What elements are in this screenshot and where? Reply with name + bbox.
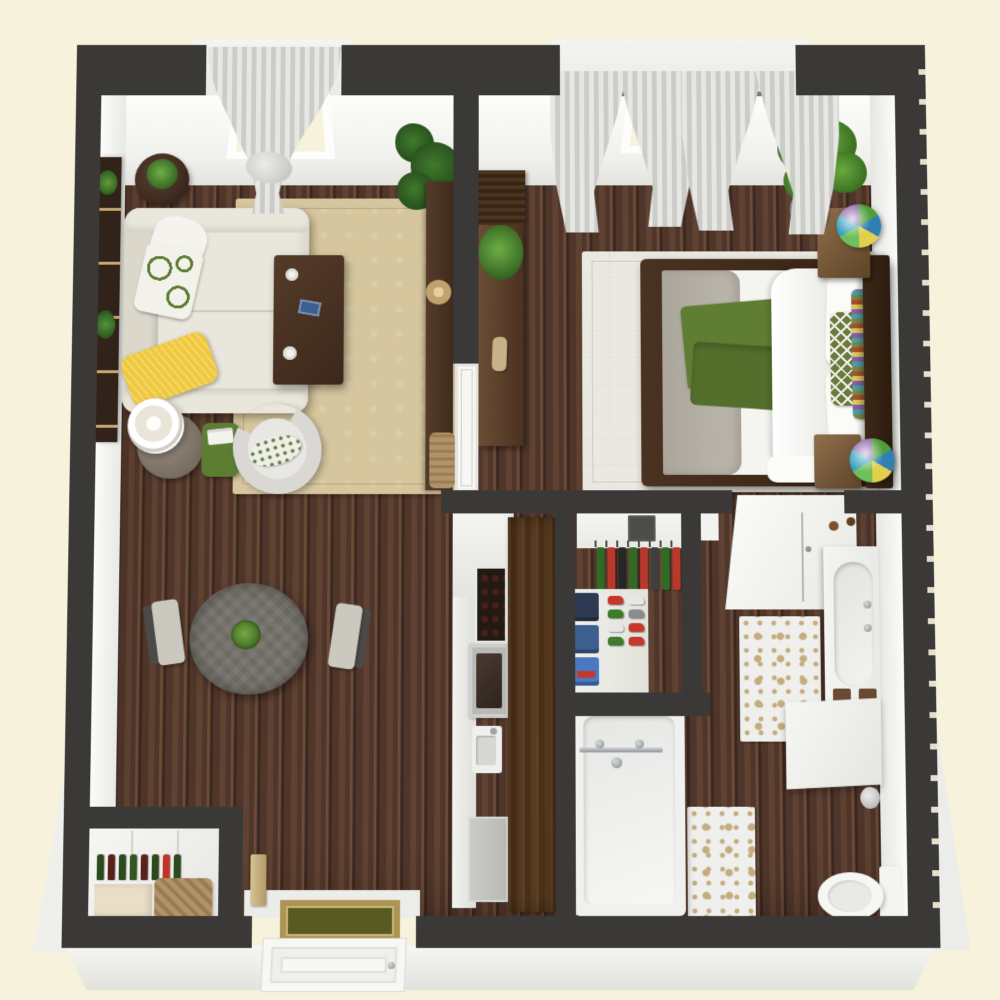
key-holder-plaque bbox=[250, 854, 266, 906]
wine-bottle bbox=[163, 854, 170, 880]
wine-bottle bbox=[108, 854, 115, 880]
hanging-garment bbox=[596, 547, 604, 590]
tub-spout bbox=[611, 757, 622, 768]
tub-handle bbox=[595, 740, 604, 749]
wall-vent bbox=[628, 515, 656, 541]
folded-stack bbox=[573, 593, 599, 621]
green-throw-fold bbox=[690, 342, 784, 411]
bedroom-door bbox=[455, 364, 479, 493]
shoe bbox=[607, 636, 623, 645]
wall-living-bedroom bbox=[453, 45, 479, 364]
woven-storage-basket bbox=[154, 878, 212, 920]
oven-glass bbox=[476, 653, 502, 708]
wall-closet-right bbox=[681, 513, 702, 696]
toiletry-jar bbox=[846, 517, 855, 526]
shoe bbox=[607, 595, 623, 604]
mug bbox=[286, 268, 299, 280]
storage-box bbox=[94, 884, 152, 916]
faucet-bar bbox=[579, 748, 662, 753]
wine-bottle bbox=[97, 854, 104, 880]
shower-handle bbox=[805, 546, 811, 552]
shoe bbox=[607, 623, 623, 632]
wine-bottle-shelf bbox=[97, 850, 209, 880]
waste-bin bbox=[860, 787, 880, 809]
wall-bedroom-south bbox=[844, 490, 901, 513]
wall-bedroom-south bbox=[441, 490, 732, 513]
slatted-cabinet bbox=[479, 170, 526, 225]
shoe bbox=[628, 636, 644, 645]
toiletry-jar bbox=[829, 521, 839, 531]
door-handle bbox=[388, 962, 395, 969]
box-label bbox=[577, 671, 595, 678]
folded-stack bbox=[573, 625, 599, 653]
hanging-garment bbox=[650, 547, 658, 590]
toilet-seat bbox=[827, 880, 871, 912]
shoe bbox=[628, 595, 644, 604]
stained-glass-lamp bbox=[849, 438, 895, 482]
bathroom-rug-lower bbox=[687, 807, 756, 924]
hanging-clothes-rail bbox=[595, 547, 684, 594]
hanging-garment bbox=[661, 547, 669, 590]
hanger-hooks bbox=[595, 541, 682, 548]
faucet bbox=[490, 728, 497, 735]
wall-bottom bbox=[62, 916, 253, 948]
green-centerpiece-bowl bbox=[231, 620, 261, 649]
wall-top bbox=[341, 45, 560, 95]
wine-bottle bbox=[119, 854, 126, 880]
wine-bottle bbox=[174, 854, 181, 880]
wine-bottle bbox=[130, 854, 137, 880]
shoe bbox=[607, 609, 623, 618]
front-door bbox=[260, 938, 406, 992]
wine-storage-cube bbox=[474, 566, 508, 644]
round-hat-decor bbox=[426, 280, 451, 305]
shoe-shelf bbox=[605, 593, 649, 698]
woven-basket bbox=[429, 433, 455, 489]
exterior-wall-face-bottom bbox=[51, 946, 949, 990]
wine-bottle bbox=[152, 854, 159, 880]
shoe bbox=[628, 623, 644, 632]
hanging-garment bbox=[639, 547, 647, 590]
vanity-faucet bbox=[864, 624, 872, 632]
wall-pantry-right bbox=[218, 807, 243, 918]
wine-bottle bbox=[141, 854, 148, 880]
stained-glass-lamp bbox=[836, 204, 881, 247]
shoe bbox=[628, 609, 644, 618]
dresser-plant bbox=[479, 225, 524, 280]
apartment-floor-plan bbox=[0, 34, 1000, 1000]
bathroom-half-wall bbox=[786, 698, 882, 790]
hanging-garment bbox=[629, 547, 637, 590]
hanging-garment bbox=[618, 547, 626, 590]
mug bbox=[283, 346, 297, 359]
wall-pantry-top bbox=[64, 807, 242, 829]
tall-kitchen-cabinets bbox=[508, 517, 556, 912]
decor-statue bbox=[492, 337, 508, 372]
wall-bottom bbox=[416, 916, 941, 948]
tub-handle bbox=[635, 740, 644, 749]
folded-clothes-stacks bbox=[573, 593, 601, 697]
floor-plan-stage bbox=[0, 0, 1000, 1000]
coffee-table bbox=[273, 255, 344, 384]
hanging-garment bbox=[672, 547, 680, 590]
vanity-faucet bbox=[863, 601, 871, 609]
sink-basin bbox=[476, 736, 496, 766]
doormat bbox=[280, 900, 400, 942]
dishwasher bbox=[468, 817, 508, 902]
hanging-garment bbox=[607, 547, 615, 590]
